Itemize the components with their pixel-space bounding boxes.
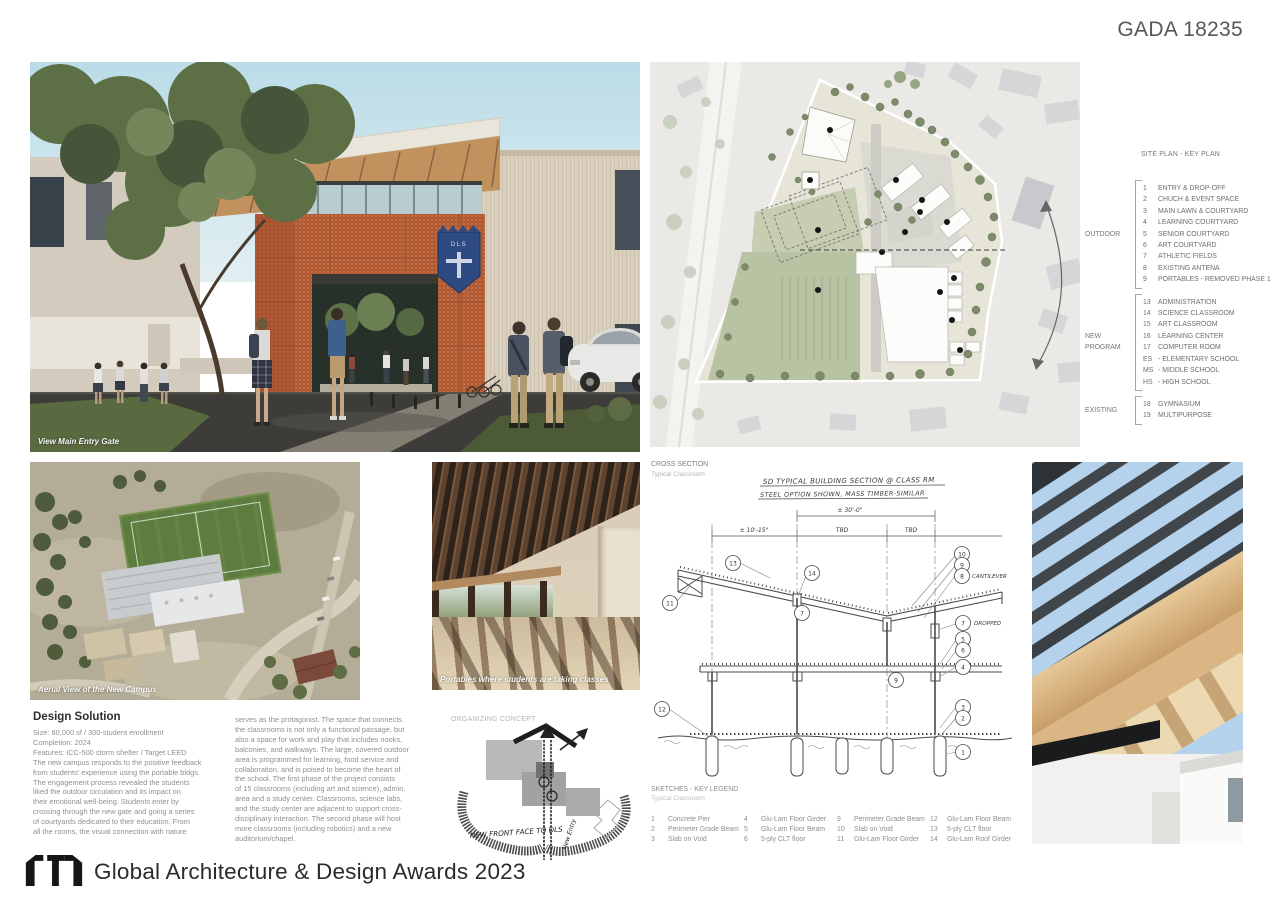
legend-item: 11Glu-Lam Floor Girder <box>837 835 930 845</box>
key-plan-item: MS - MIDDLE SCHOOL <box>1143 365 1239 376</box>
entry-gate-rendering: DLS <box>30 62 640 452</box>
svg-text:± 30'-0": ± 30'-0" <box>838 507 863 514</box>
key-plan-title: SITE PLAN - KEY PLAN <box>1141 151 1273 158</box>
key-plan-item: 3 MAIN LAWN & COURTYARD <box>1143 206 1271 217</box>
svg-text:11: 11 <box>666 601 674 608</box>
group-name: OUTDOOR <box>1085 229 1135 240</box>
site-plan-key-legend: SITE PLAN - KEY PLAN OUTDOOR 1 ENTRY & D… <box>1085 151 1273 430</box>
legend-item: 4Glu-Lam Floor Girder <box>744 815 837 825</box>
concept-sketch-drawing: NEW FRONT FACE TO DLS New Entry <box>448 722 648 867</box>
site-plan <box>650 62 1080 447</box>
legend-item: 5Glu-Lam Floor Beam <box>744 825 837 835</box>
svg-text:STEEL OPTION SHOWN, MASS TIMBE: STEEL OPTION SHOWN, MASS TIMBER-SIMILAR <box>760 489 925 499</box>
key-plan-item: 2 CHUCH & EVENT SPACE <box>1143 194 1271 205</box>
walkway-caption: Portables where students are taking clas… <box>440 675 609 684</box>
aerial-caption: Aerial View of the New Campus <box>38 685 157 694</box>
svg-text:5: 5 <box>961 637 965 644</box>
sketches-key-legend: SKETCHES - KEY LEGEND Typical Classroom … <box>651 786 1036 845</box>
wood-detail-illustration <box>1032 462 1243 844</box>
walkway-photo: Portables where students are taking clas… <box>432 462 640 690</box>
wood-detail-photo <box>1032 462 1243 844</box>
key-plan-item: 6 ART COURTYARD <box>1143 240 1271 251</box>
key-plan-item: 19 MULTIPURPOSE <box>1143 410 1212 421</box>
render-caption: View Main Entry Gate <box>38 437 119 446</box>
design-solution-col2: serves as the protagonist. The space tha… <box>235 715 428 844</box>
entry-gate-illustration: DLS <box>30 62 640 452</box>
svg-text:10: 10 <box>958 552 966 559</box>
key-plan-item: 17 COMPUTER ROOM <box>1143 342 1239 353</box>
svg-text:TBD: TBD <box>905 527 918 534</box>
rtf-logo <box>25 855 83 888</box>
svg-text:13: 13 <box>729 561 737 568</box>
site-plan-drawing <box>650 62 1080 447</box>
svg-text:3: 3 <box>961 705 965 712</box>
aerial-photo: Aerial View of the New Campus <box>30 462 360 700</box>
legend-item: 1Concrete Pier <box>651 815 744 825</box>
svg-text:7: 7 <box>800 611 804 618</box>
legend-item: 9Perimeter Grade Beam <box>837 815 930 825</box>
svg-text:8: 8 <box>960 574 964 581</box>
svg-text:TBD: TBD <box>836 527 849 534</box>
sketches-legend-title: SKETCHES - KEY LEGEND <box>651 786 1036 793</box>
section-sketch-drawing: SD TYPICAL BUILDING SECTION @ CLASS RM S… <box>650 466 1020 781</box>
key-plan-item: 5 SENIOR COURTYARD <box>1143 229 1271 240</box>
legend-item: 135-ply CLT floor <box>930 825 1023 835</box>
group-name: EXISTING <box>1085 405 1135 416</box>
legend-item: 65-ply CLT floor <box>744 835 837 845</box>
legend-item: 2Perimeter Grade Beam <box>651 825 744 835</box>
aerial-illustration <box>30 462 360 700</box>
walkway-wall <box>598 526 640 629</box>
key-plan-group-existing: EXISTING 18 GYMNASIUM 19 MULTIPURPOSE <box>1085 396 1273 425</box>
key-plan-group-outdoor: OUTDOOR 1 ENTRY & DROP-OFF 2 CHUCH & EVE… <box>1085 180 1273 289</box>
key-plan-item: 1 ENTRY & DROP-OFF <box>1143 183 1271 194</box>
key-plan-item: 4 LEARNING COURTYARD <box>1143 217 1271 228</box>
key-plan-item: 18 GYMNASIUM <box>1143 399 1212 410</box>
svg-text:NEW FRONT FACE TO DLS: NEW FRONT FACE TO DLS <box>470 824 564 839</box>
svg-text:DLS: DLS <box>451 242 467 248</box>
cross-section-sketch: SD TYPICAL BUILDING SECTION @ CLASS RM S… <box>650 466 1020 781</box>
key-plan-item: HS - HIGH SCHOOL <box>1143 377 1239 388</box>
key-plan-item: ES - ELEMENTARY SCHOOL <box>1143 354 1239 365</box>
footer: Global Architecture & Design Awards 2023 <box>25 855 526 888</box>
sketches-legend-subtitle: Typical Classroom <box>651 795 1036 802</box>
key-plan-item: 15 ART CLASSROOM <box>1143 319 1239 330</box>
board-id: GADA 18235 <box>1117 18 1243 42</box>
svg-text:14: 14 <box>808 571 816 578</box>
legend-item: 14Glu-Lam Roof Girder <box>930 835 1023 845</box>
svg-text:9: 9 <box>960 563 964 570</box>
group-name: NEW PROGRAM <box>1085 331 1135 353</box>
svg-text:± 10'-15": ± 10'-15" <box>740 527 769 534</box>
organizing-concept-sketch: NEW FRONT FACE TO DLS New Entry <box>448 722 648 867</box>
awards-title: Global Architecture & Design Awards 2023 <box>94 859 526 885</box>
key-plan-item: 16 LEARNING CENTER <box>1143 331 1239 342</box>
svg-text:1: 1 <box>961 750 965 757</box>
design-solution: Design Solution Size: 80,000 sf / 300-st… <box>33 711 435 844</box>
legend-item: 3Slab on Void <box>651 835 744 845</box>
svg-text:7: 7 <box>961 621 965 628</box>
key-plan-item: 13 ADMINISTRATION <box>1143 297 1239 308</box>
design-solution-col1: Size: 80,000 sf / 300-student enrollment… <box>33 728 226 844</box>
svg-text:DROPPED: DROPPED <box>974 621 1002 627</box>
key-plan-item: 9 PORTABLES - REMOVED PHASE 1 <box>1143 274 1271 285</box>
svg-text:CANTILEVER: CANTILEVER <box>972 574 1007 580</box>
key-plan-item: 14 SCIENCE CLASSROOM <box>1143 308 1239 319</box>
svg-text:12: 12 <box>658 707 666 714</box>
key-plan-item: 7 ATHLETIC FIELDS <box>1143 251 1271 262</box>
svg-text:9: 9 <box>894 678 898 685</box>
svg-text:6: 6 <box>961 648 965 655</box>
legend-item: 12Glu-Lam Floor Beam <box>930 815 1023 825</box>
svg-text:4: 4 <box>961 665 965 672</box>
key-plan-item: 8 EXISTING ANTENA <box>1143 263 1271 274</box>
key-plan-group-new-program: NEW PROGRAM 13 ADMINISTRATION 14 SCIENCE… <box>1085 294 1273 391</box>
presentation-board: GADA 18235 <box>0 0 1273 900</box>
legend-item: 10Slab on Void <box>837 825 930 835</box>
svg-text:SD TYPICAL BUILDING SECTION @: SD TYPICAL BUILDING SECTION @ CLASS RM <box>763 476 935 486</box>
svg-text:2: 2 <box>961 716 965 723</box>
